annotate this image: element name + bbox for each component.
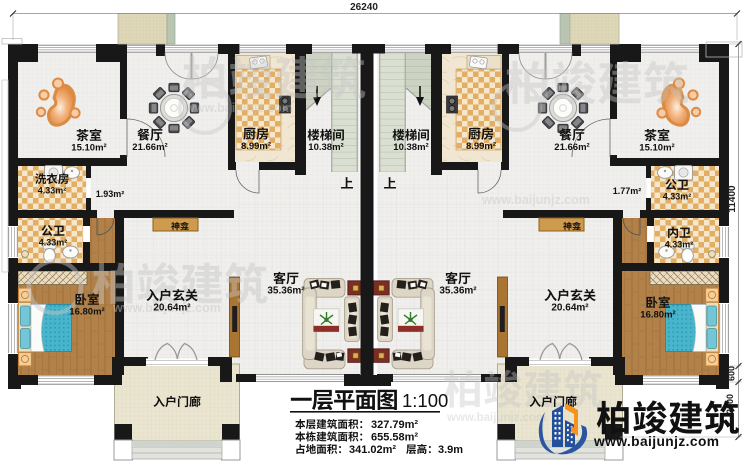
svg-text:1.93m²: 1.93m² [96,189,125,199]
svg-text:341.02m²: 341.02m² [349,444,396,456]
svg-text:3.9m: 3.9m [438,444,463,456]
svg-text:600: 600 [727,366,737,381]
svg-text:4.33m²: 4.33m² [663,192,692,202]
svg-text:www.baijunjz.com: www.baijunjz.com [446,412,546,424]
svg-text:www.baijunjz.com: www.baijunjz.com [593,434,719,449]
svg-text:35.36m²: 35.36m² [439,286,477,297]
svg-text:www.baijunjz.com: www.baijunjz.com [184,101,293,115]
svg-text:16.80m²: 16.80m² [69,307,104,318]
svg-text:11400: 11400 [727,185,738,213]
svg-text:4.33m²: 4.33m² [39,238,68,248]
svg-text:655.58m²: 655.58m² [371,432,418,444]
svg-text:4.33m²: 4.33m² [38,186,67,196]
svg-text:10.38m²: 10.38m² [393,142,428,153]
svg-text:20.64m²: 20.64m² [153,303,191,314]
svg-text:15.10m²: 15.10m² [71,143,106,154]
svg-text:www.baijunjz.com: www.baijunjz.com [481,193,590,207]
svg-text:327.79m²: 327.79m² [371,419,418,431]
svg-text:35.36m²: 35.36m² [267,286,305,297]
svg-text:20.64m²: 20.64m² [551,303,589,314]
svg-text:21.66m²: 21.66m² [132,142,167,153]
svg-text:15.10m²: 15.10m² [639,143,674,154]
svg-text:8.99m²: 8.99m² [466,141,496,152]
svg-text:26240: 26240 [350,2,378,13]
svg-text:21.66m²: 21.66m² [554,142,589,153]
svg-text:10.38m²: 10.38m² [308,142,343,153]
svg-text:8.99m²: 8.99m² [241,141,271,152]
svg-text:4.33m²: 4.33m² [665,240,694,250]
svg-text:1.77m²: 1.77m² [613,186,642,196]
svg-text:16.80m²: 16.80m² [640,310,675,321]
svg-text:1:100: 1:100 [402,390,448,411]
